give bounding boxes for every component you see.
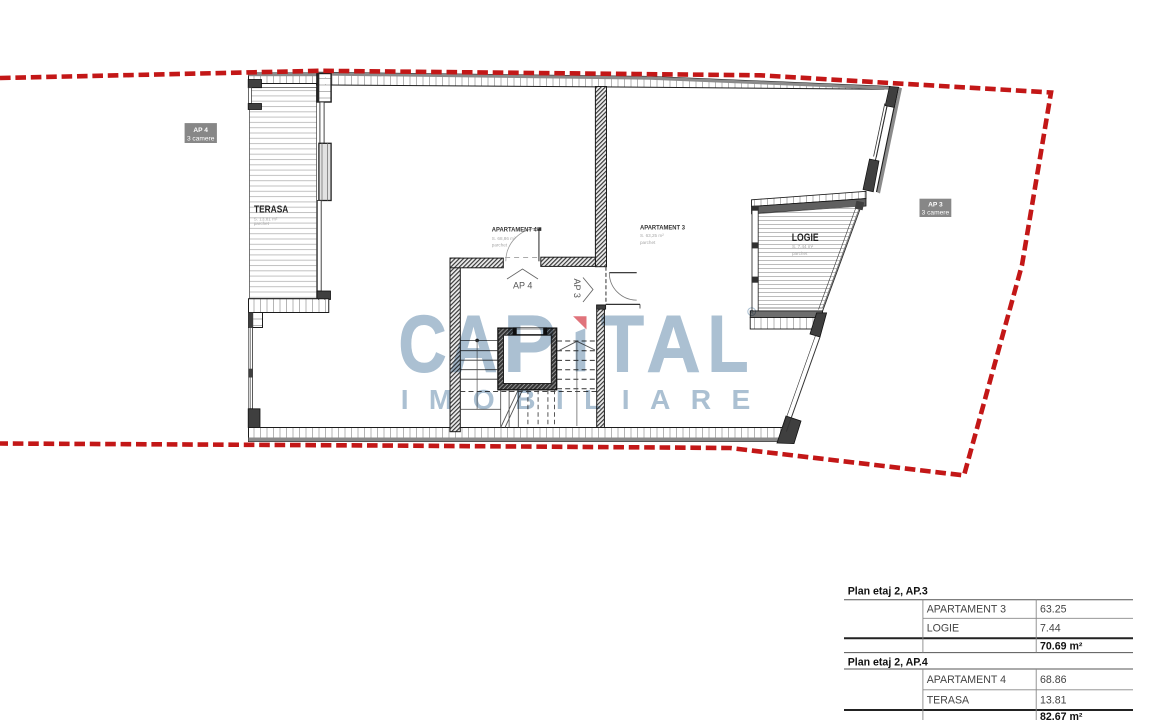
svg-text:T: T <box>601 299 644 389</box>
svg-text:AP 3: AP 3 <box>928 202 943 209</box>
svg-text:3 camere: 3 camere <box>922 210 950 217</box>
svg-text:Plan etaj 2, AP.3: Plan etaj 2, AP.3 <box>848 586 928 598</box>
svg-text:63.25: 63.25 <box>1040 604 1067 616</box>
svg-text:parchet: parchet <box>492 242 508 247</box>
svg-text:APARTAMENT 4: APARTAMENT 4 <box>492 227 537 234</box>
svg-text:AP 4: AP 4 <box>193 127 208 134</box>
svg-text:70.69 m²: 70.69 m² <box>1040 641 1083 653</box>
svg-text:S. 7,44 m²: S. 7,44 m² <box>792 244 814 249</box>
svg-text:IMOBILIARE: IMOBILIARE <box>401 383 771 415</box>
svg-text:C: C <box>399 299 447 389</box>
svg-text:parchet: parchet <box>792 251 808 256</box>
svg-text:68.86: 68.86 <box>1040 674 1067 686</box>
svg-text:L: L <box>708 299 749 389</box>
svg-text:P: P <box>504 299 556 389</box>
svg-text:APARTAMENT 3: APARTAMENT 3 <box>927 604 1006 616</box>
svg-text:AP 3: AP 3 <box>572 279 582 298</box>
svg-text:TERASA: TERASA <box>254 204 289 215</box>
svg-text:R: R <box>750 310 754 316</box>
svg-text:parchet: parchet <box>640 240 656 245</box>
svg-text:APARTAMENT 4: APARTAMENT 4 <box>927 674 1006 686</box>
svg-text:7.44: 7.44 <box>1040 623 1061 635</box>
svg-text:Plan etaj 2, AP.4: Plan etaj 2, AP.4 <box>848 657 928 669</box>
svg-text:3 camere: 3 camere <box>187 135 215 142</box>
svg-text:A: A <box>450 299 498 389</box>
svg-text:13.81: 13.81 <box>1040 695 1067 707</box>
svg-text:parchet: parchet <box>254 221 270 226</box>
svg-text:82.67 m²: 82.67 m² <box>1040 711 1083 720</box>
svg-text:LOGIE: LOGIE <box>792 232 819 244</box>
svg-text:TERASA: TERASA <box>927 695 970 707</box>
svg-text:AP 4: AP 4 <box>513 281 532 291</box>
svg-text:LOGIE: LOGIE <box>927 623 959 635</box>
svg-text:S. 68,86 m²: S. 68,86 m² <box>492 236 516 241</box>
svg-text:A: A <box>647 299 701 389</box>
svg-text:APARTAMENT 3: APARTAMENT 3 <box>640 225 685 232</box>
svg-text:S. 63,25 m²: S. 63,25 m² <box>640 233 664 238</box>
